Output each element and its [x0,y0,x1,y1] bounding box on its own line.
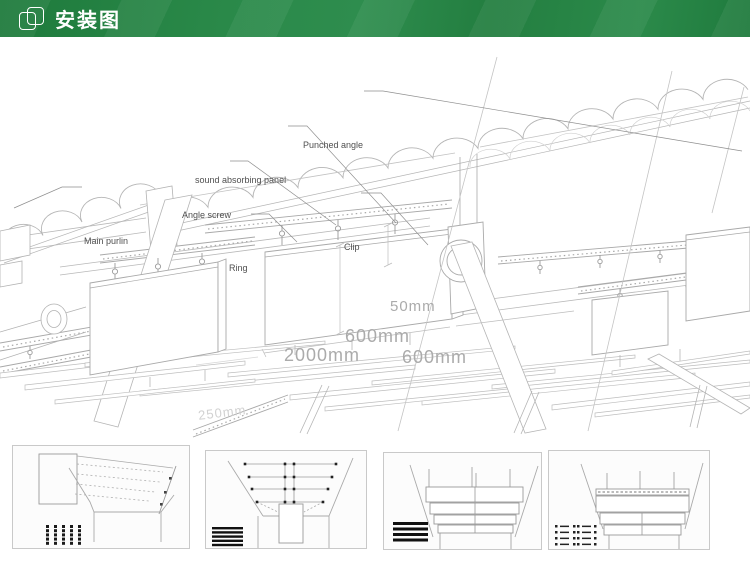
panel-front-shape [19,12,36,30]
label-clip: Clip [344,243,360,253]
installation-diagram: Punched angle sound absorbing panel Angl… [0,55,750,440]
panels-icon [16,6,46,31]
thumb1-drawing [13,446,189,548]
label-ring: Ring [229,264,248,274]
section-title: 安装图 [55,4,121,33]
label-punched-angle: Punched angle [303,141,363,151]
label-sound-absorbing-panel: sound absorbing panel [195,176,286,186]
section-header: 安装图 [0,0,750,37]
thumb-stacked-baffles-front [383,452,542,550]
label-angle-screw: Angle screw [182,211,231,221]
label-main-purlin: Main purlin [84,237,128,247]
dim-panel-length: 2000mm [284,345,360,366]
thumb-stacked-baffles-hatched [548,450,710,550]
dim-panel-thickness: 50mm [390,298,436,315]
dim-panel-spacing: 600mm [402,347,467,368]
diagram-linework [0,55,750,440]
thumb4-drawing [549,451,709,549]
thumb3-drawing [384,453,541,549]
thumb-suspension-grid-plan [205,450,367,549]
thumb-ceiling-perspective [12,445,190,549]
thumb2-drawing [206,451,366,548]
dim-panel-height: 600mm [345,326,410,347]
